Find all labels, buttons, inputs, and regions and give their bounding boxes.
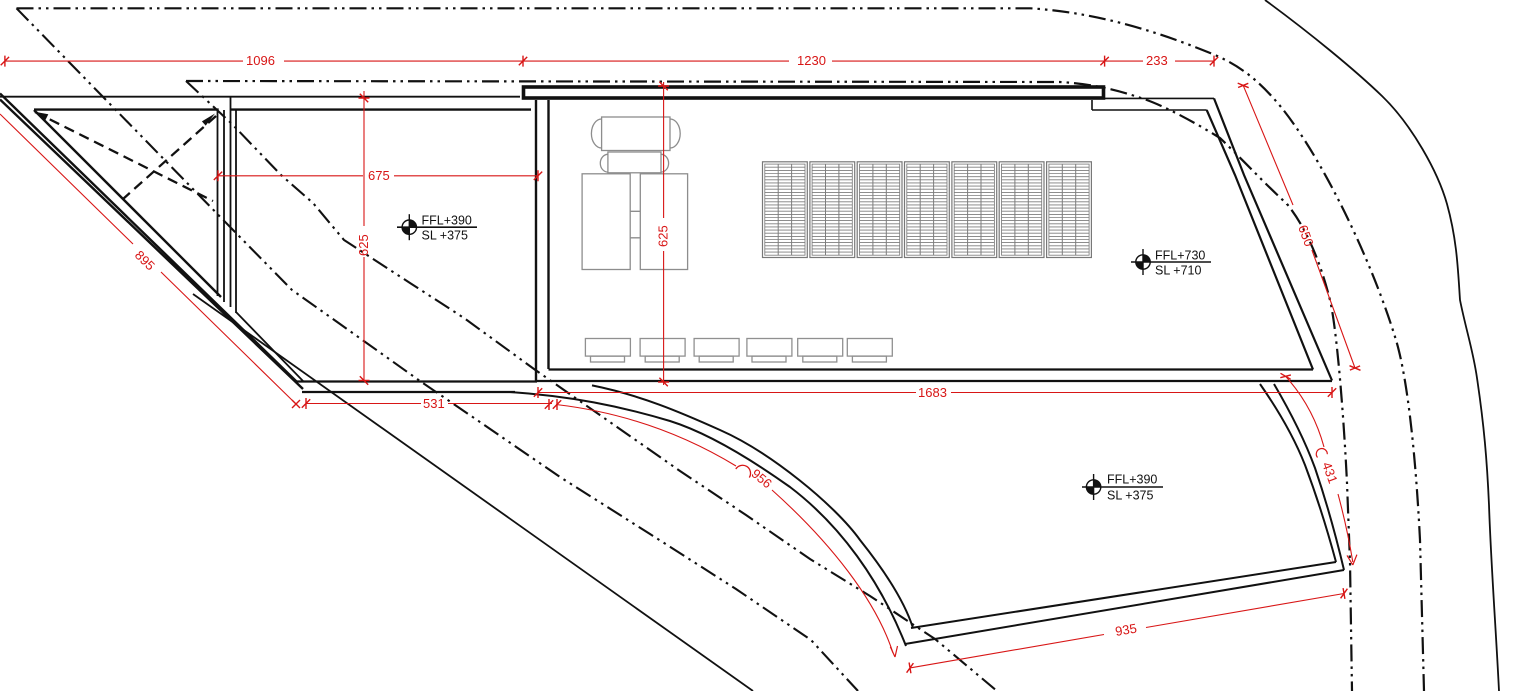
svg-text:1683: 1683: [918, 385, 947, 400]
svg-text:1096: 1096: [246, 53, 275, 68]
svg-text:935: 935: [1114, 621, 1138, 639]
svg-text:FFL+730: FFL+730: [1155, 249, 1205, 263]
svg-text:FFL+390: FFL+390: [1107, 473, 1157, 487]
svg-text:SL +375: SL +375: [422, 229, 469, 243]
svg-text:625: 625: [656, 225, 671, 247]
svg-text:895: 895: [132, 247, 158, 273]
svg-text:SL +710: SL +710: [1155, 264, 1202, 278]
svg-text:531: 531: [423, 396, 445, 411]
svg-text:233: 233: [1146, 53, 1168, 68]
svg-text:FFL+390: FFL+390: [422, 214, 472, 228]
svg-text:650: 650: [1295, 223, 1317, 249]
svg-text:675: 675: [368, 168, 390, 183]
svg-text:625: 625: [356, 234, 371, 256]
svg-text:956: 956: [749, 466, 775, 491]
svg-text:1230: 1230: [797, 53, 826, 68]
svg-text:431: 431: [1319, 460, 1341, 486]
svg-text:SL +375: SL +375: [1107, 489, 1154, 503]
